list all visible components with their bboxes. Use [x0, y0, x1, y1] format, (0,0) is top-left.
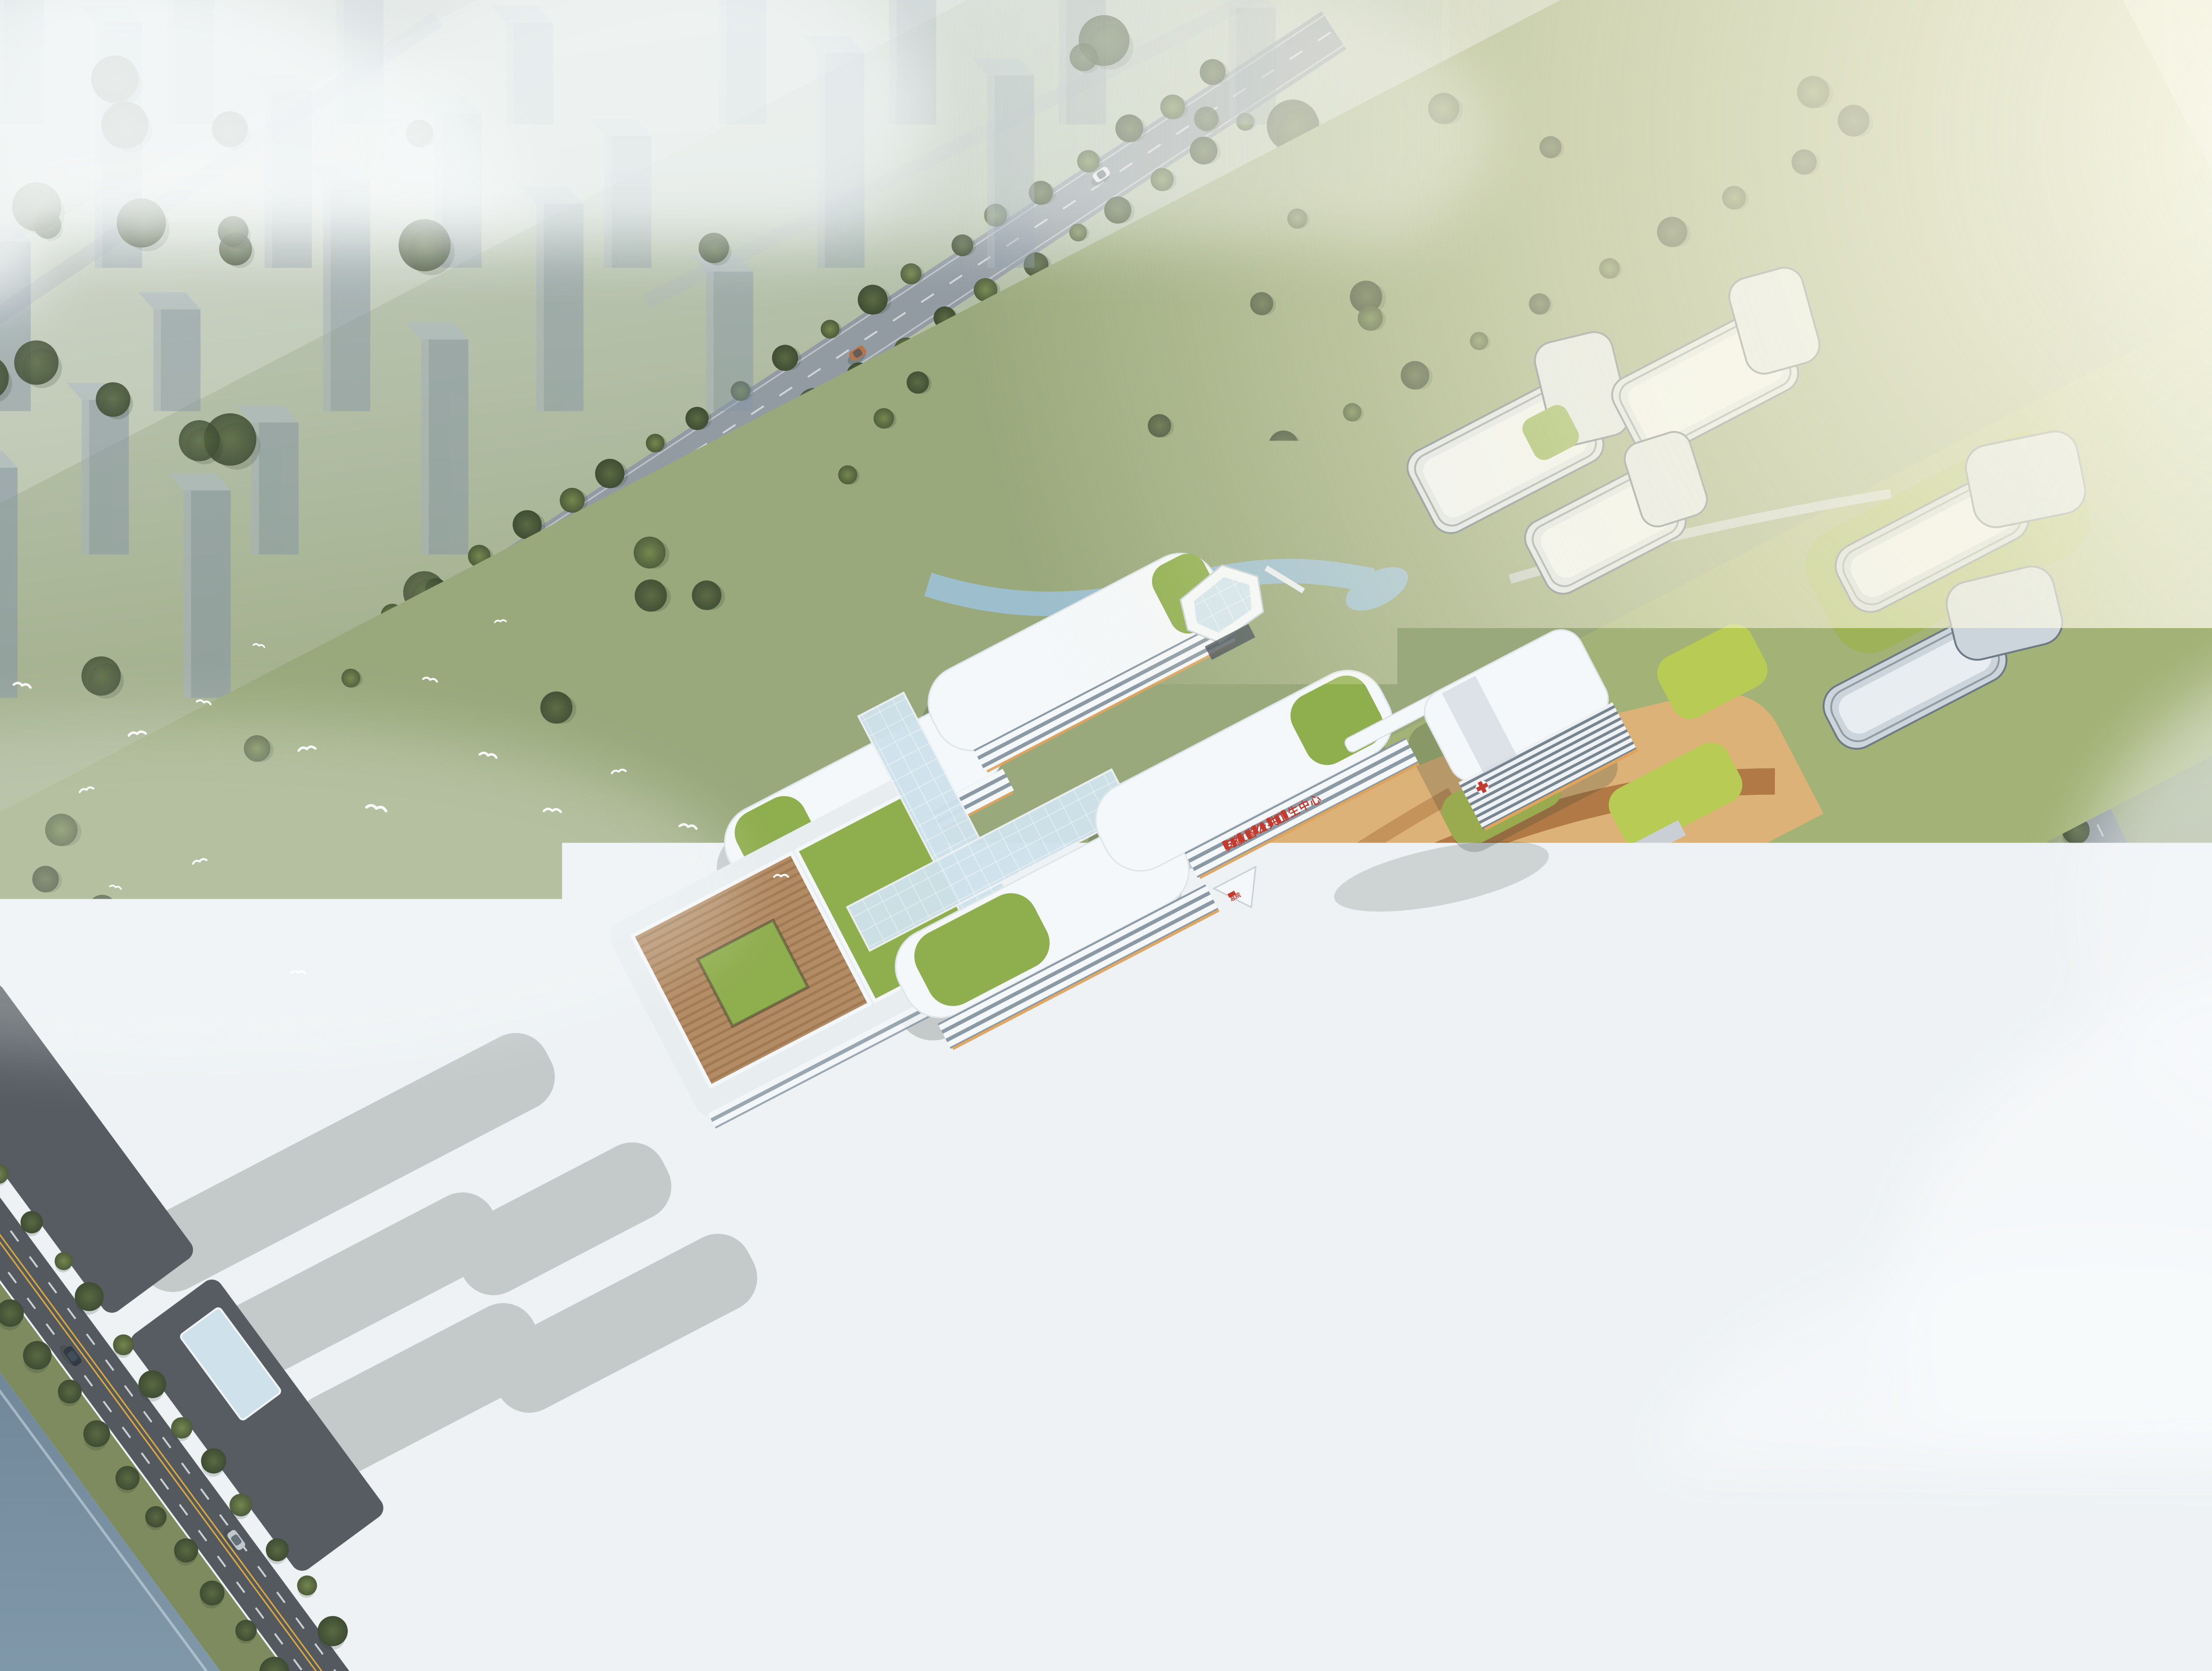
- tree-icon: [909, 1401, 953, 1445]
- tree-icon: [1208, 1362, 1275, 1429]
- rendering-canvas: 安徽省公共卫生中心 总院: [0, 0, 2212, 1671]
- tree-icon: [1323, 1369, 1375, 1422]
- tree-icon: [795, 1615, 828, 1648]
- tree-icon: [725, 1540, 796, 1611]
- tree-icon: [1493, 1329, 1537, 1372]
- tree-icon: [839, 1471, 900, 1533]
- tree-icon: [1178, 1456, 1248, 1526]
- east-haze: [1985, 0, 2212, 1671]
- tree-icon: [1318, 1479, 1386, 1548]
- tree-icon: [662, 1483, 720, 1540]
- tree-icon: [1380, 1453, 1435, 1507]
- tree-icon: [1348, 1175, 1410, 1237]
- tree-icon: [1056, 1282, 1096, 1321]
- tree-icon: [1189, 1553, 1234, 1598]
- tree-icon: [653, 1544, 694, 1584]
- tree-icon: [1089, 1499, 1141, 1551]
- aerial-rendering: 安徽省公共卫生中心 总院: [0, 0, 2212, 1671]
- tree-icon: [1307, 1134, 1348, 1175]
- tree-icon: [1021, 1585, 1064, 1628]
- tree-icon: [1278, 1320, 1334, 1376]
- tree-icon: [1192, 1186, 1258, 1252]
- tree-icon: [1093, 1390, 1150, 1447]
- tree-icon: [942, 1514, 996, 1568]
- tree-icon: [1380, 1549, 1440, 1609]
- tree-icon: [1552, 1386, 1620, 1453]
- tree-icon: [1424, 1289, 1457, 1322]
